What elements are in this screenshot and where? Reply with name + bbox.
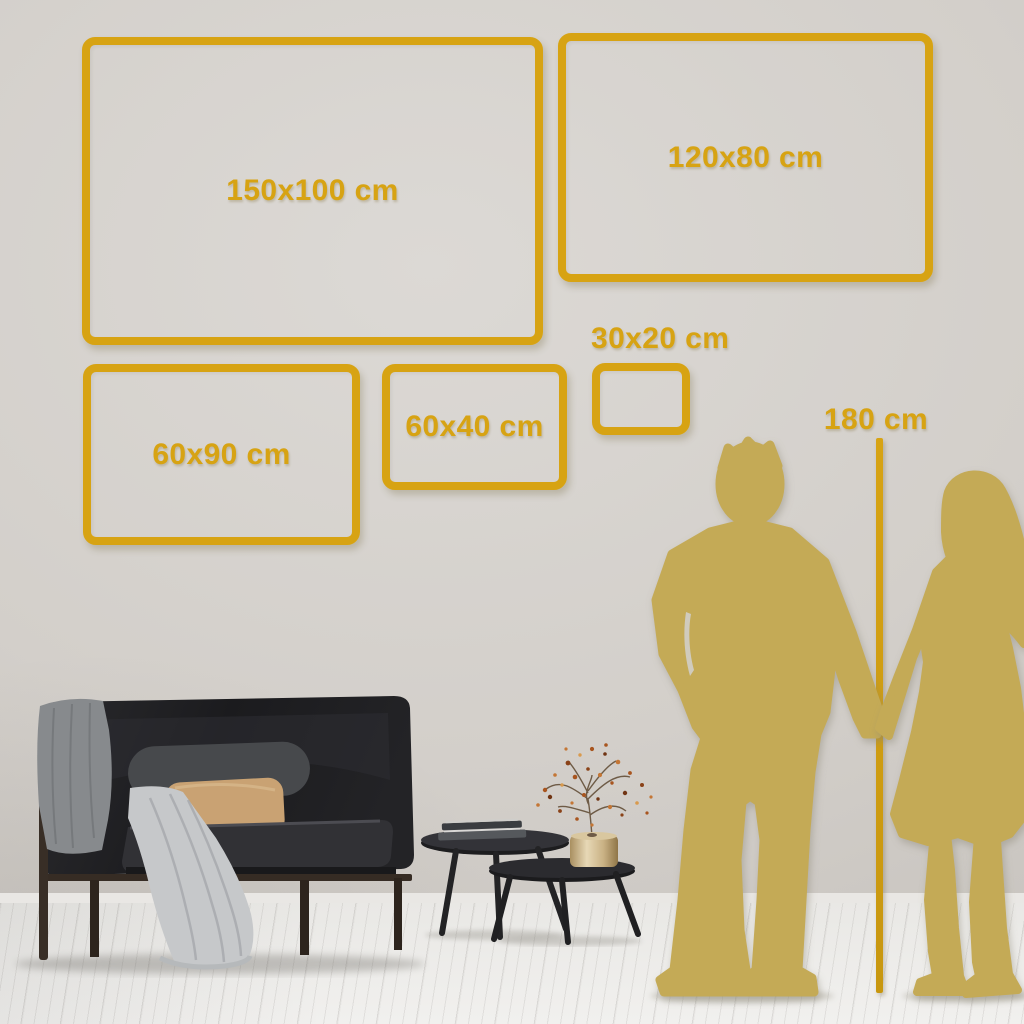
sofa-leg — [90, 880, 99, 957]
man-body — [656, 522, 882, 992]
sofa-illustration — [10, 688, 430, 978]
couple-silhouette-illustration — [630, 430, 1024, 1010]
size-label-150x100: 150x100 cm — [226, 174, 399, 208]
size-frame-30x20 — [592, 363, 690, 435]
plant-branches — [546, 761, 630, 837]
man-silhouette — [656, 441, 882, 992]
size-label-60x90: 60x90 cm — [152, 438, 290, 472]
size-label-30x20: 30x20 cm — [591, 322, 729, 356]
stacked-books — [438, 818, 527, 840]
woman-head — [947, 485, 999, 547]
man-head — [720, 446, 780, 522]
sofa-leg — [394, 878, 402, 950]
sofa-leg — [300, 880, 309, 955]
woman-silhouette — [879, 474, 1024, 994]
size-label-60x40: 60x40 cm — [405, 410, 543, 444]
size-frame-60x40: 60x40 cm — [382, 364, 567, 490]
size-label-120x80: 120x80 cm — [668, 141, 823, 175]
woman-left-leg — [917, 832, 966, 992]
wall-art-size-guide-scene: 150x100 cm 120x80 cm 60x90 cm 60x40 cm 3… — [0, 0, 1024, 1024]
size-frame-120x80: 120x80 cm — [558, 33, 933, 282]
size-frame-60x90: 60x90 cm — [83, 364, 360, 545]
size-frame-150x100: 150x100 cm — [82, 37, 543, 345]
woman-right-leg — [966, 836, 1018, 994]
coffee-table-large — [421, 829, 569, 937]
gold-vase — [570, 832, 618, 867]
sofa-arm-blanket — [37, 699, 112, 854]
